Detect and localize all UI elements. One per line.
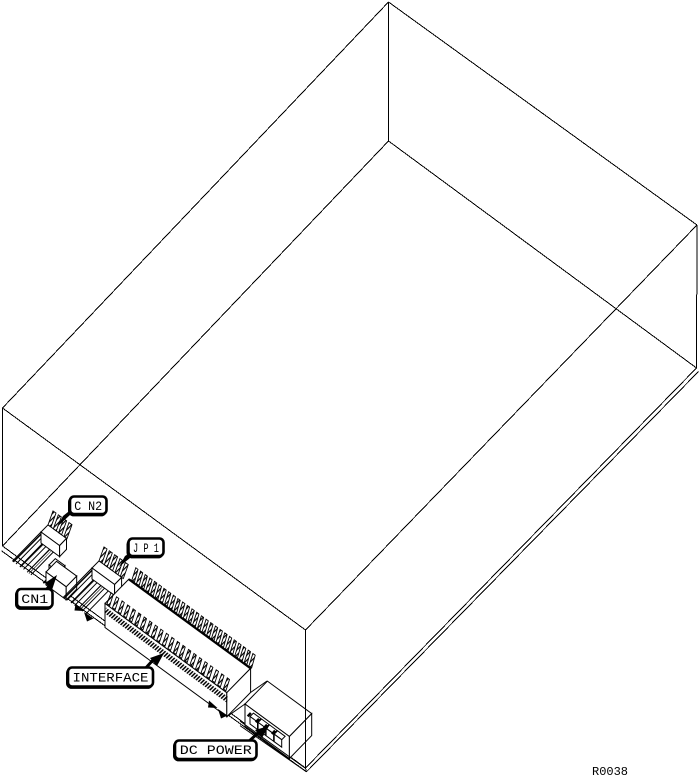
svg-text:CN1: CN1: [21, 593, 48, 607]
svg-text:C N2: C N2: [74, 500, 102, 514]
svg-text:J P 1: J P 1: [133, 542, 159, 556]
svg-text:INTERFACE: INTERFACE: [73, 672, 149, 686]
svg-text:DC POWER: DC POWER: [180, 744, 253, 758]
svg-text:R0038: R0038: [592, 765, 628, 779]
